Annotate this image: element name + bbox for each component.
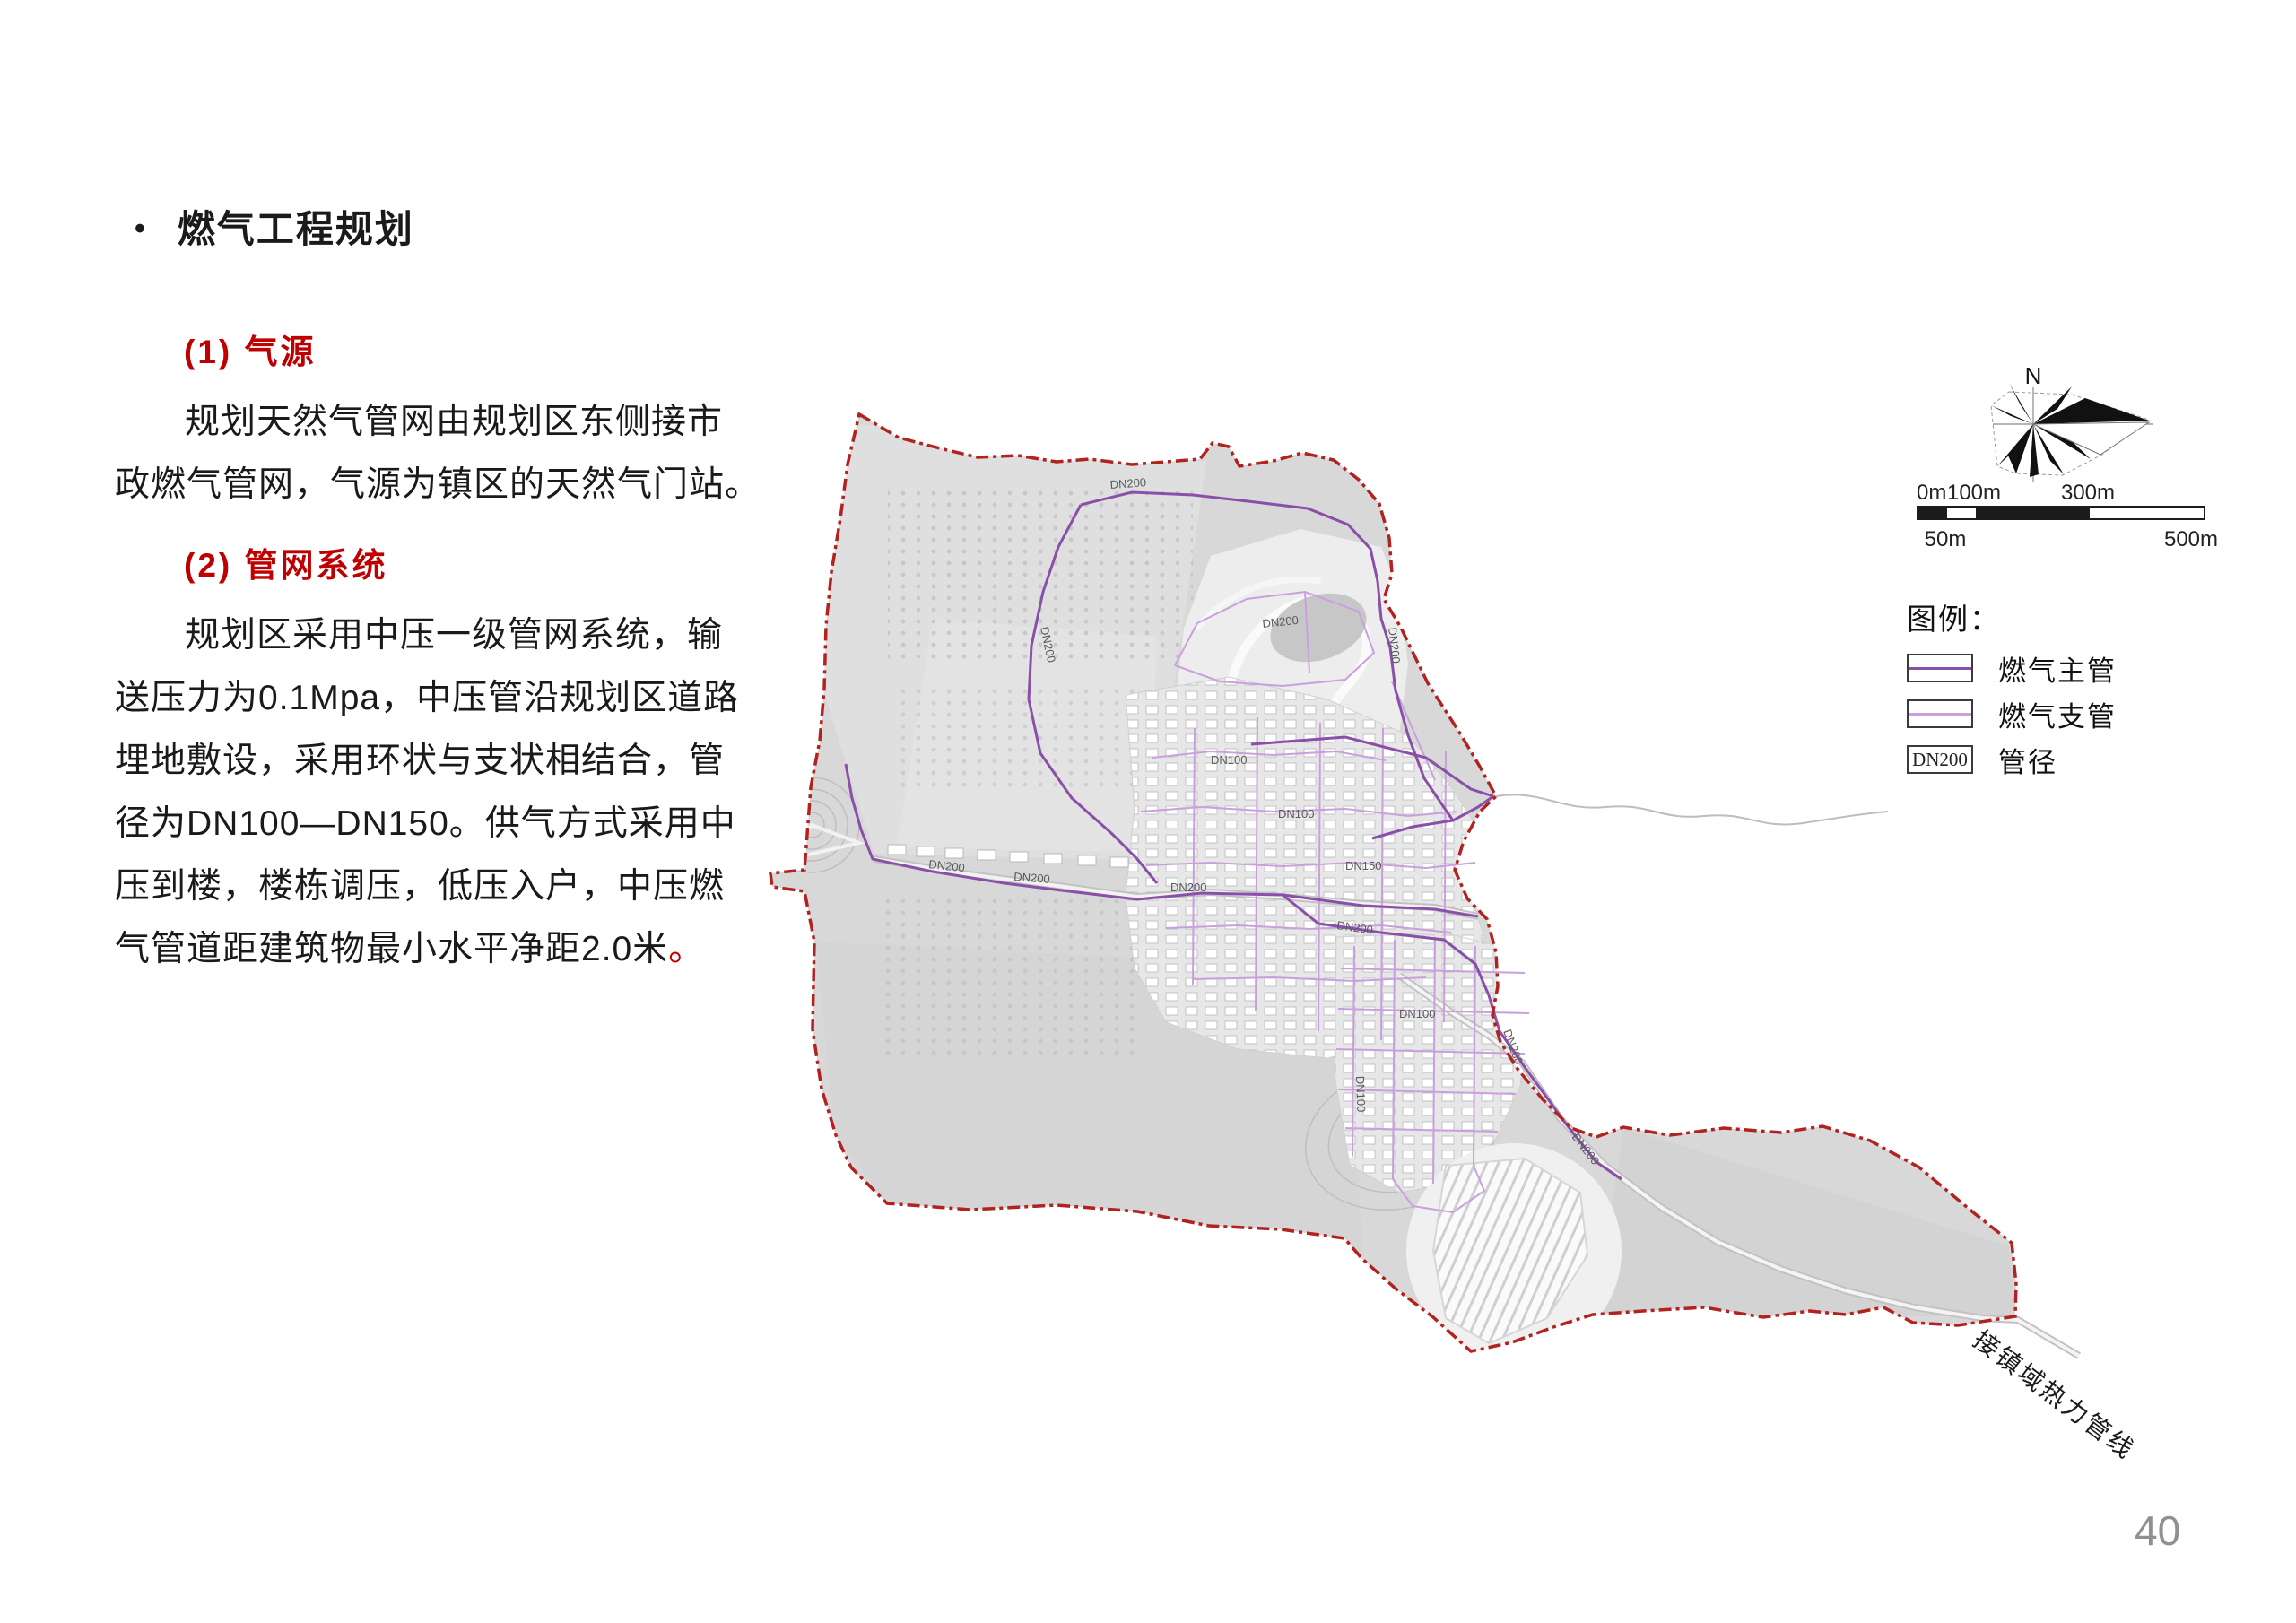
svg-text:DN100: DN100 (1399, 1007, 1435, 1020)
legend-item-diameter: DN200 管径 (1907, 744, 2117, 775)
scale-bar: 0m 100m 300m 50m 500m (1917, 481, 2204, 558)
svg-text:DN200: DN200 (1170, 881, 1206, 894)
branch-pipe-swatch (1907, 699, 1973, 728)
svg-text:DN200: DN200 (1109, 475, 1146, 491)
map-annotation: 接镇域热力管线 (1968, 1325, 2140, 1464)
scale-tick-label: 0m (1917, 481, 1946, 506)
legend-item-branch-pipe: 燃气支管 (1907, 699, 2117, 729)
scale-tick-label: 500m (2164, 527, 2218, 552)
page-number: 40 (2135, 1506, 2180, 1555)
svg-text:DN100: DN100 (1211, 753, 1247, 767)
svg-text:DN200: DN200 (1013, 870, 1050, 886)
scale-tick-label: 100m (1947, 481, 2001, 506)
svg-text:DN100: DN100 (1353, 1076, 1368, 1113)
svg-text:DN150: DN150 (1345, 859, 1381, 872)
scale-bar-strip (1917, 506, 2205, 520)
legend-title: 图例： (1907, 595, 2117, 638)
diameter-swatch: DN200 (1907, 745, 1973, 774)
map-legend: 图例： 燃气主管 燃气支管 DN200 管径 (1907, 595, 2117, 790)
document-page: •燃气工程规划 (1) 气源 规划天然气管网由规划区东侧接市 政燃气管网，气源为… (0, 0, 2296, 1623)
east-connection-line (1496, 794, 1888, 824)
scale-tick-label: 300m (2061, 481, 2115, 506)
scale-tick-label: 50m (1925, 527, 1967, 552)
main-pipe-swatch (1907, 654, 1973, 682)
north-label: N (2025, 362, 2042, 389)
svg-text:DN100: DN100 (1278, 807, 1314, 820)
gas-planning-map: DN200 DN200 DN200 DN200 DN200 DN200 DN20… (0, 0, 2296, 1623)
legend-item-main-pipe: 燃气主管 (1907, 653, 2117, 683)
